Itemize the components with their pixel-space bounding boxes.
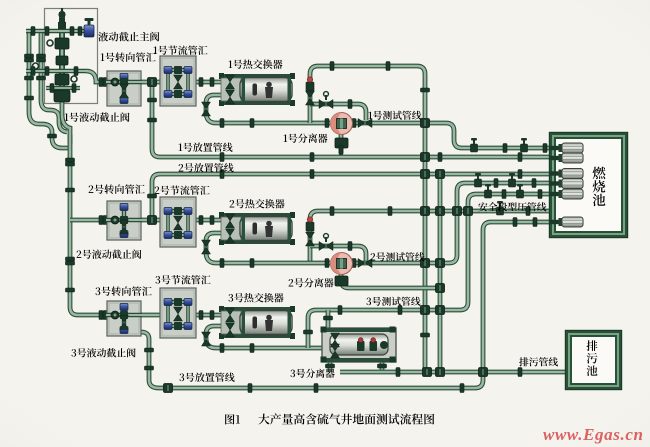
svg-text:www.Egas.cn: www.Egas.cn [543, 425, 643, 444]
